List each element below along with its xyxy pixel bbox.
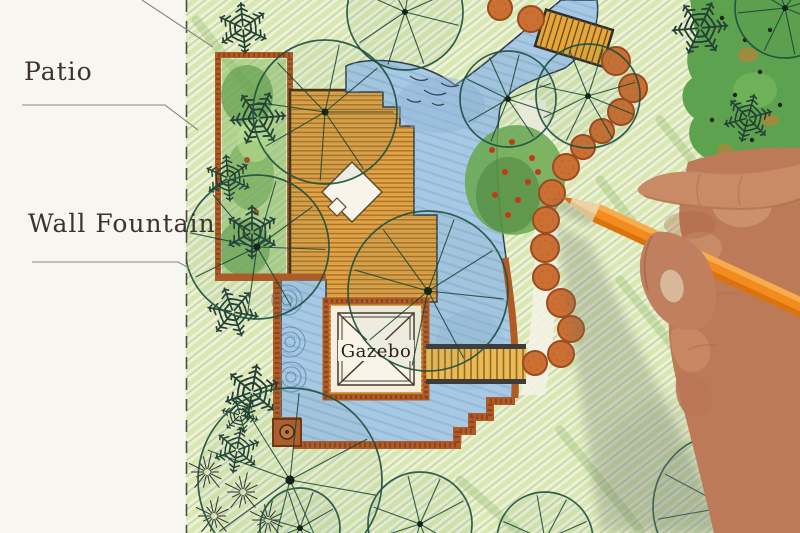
stepping-stone [553, 154, 579, 180]
wall-fountain-label: Wall Fountain [28, 209, 216, 238]
patio-label: Patio [24, 57, 93, 86]
stepping-stone [548, 341, 574, 367]
stepping-stone [518, 6, 544, 32]
tree-canopy [536, 44, 640, 148]
stepping-stone [531, 234, 559, 262]
stepping-stone [488, 0, 512, 20]
stepping-stone [533, 207, 559, 233]
plan-drawing [0, 0, 800, 533]
tree-canopy [185, 175, 329, 319]
gazebo-label: Gazebo [338, 341, 414, 362]
stepping-stone [533, 264, 559, 290]
stepping-stone [523, 351, 547, 375]
photo-of-landscape-plan: Patio Wall Fountain Gazebo [0, 0, 800, 533]
